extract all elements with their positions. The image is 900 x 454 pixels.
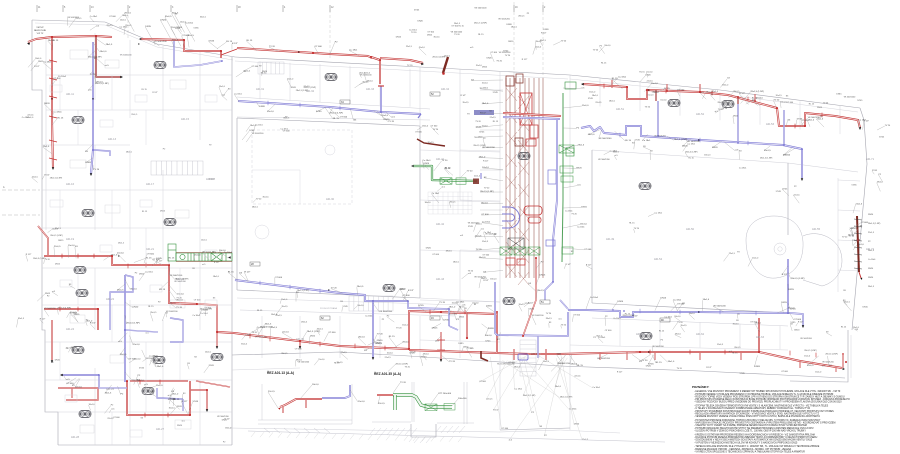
svg-text:DN20: DN20: [133, 307, 139, 309]
svg-text:VK 500/1200: VK 500/1200: [652, 346, 664, 348]
svg-text:RL 15: RL 15: [159, 289, 166, 291]
svg-text:57/45: 57/45: [790, 308, 796, 310]
svg-text:28x1,5: 28x1,5: [357, 286, 364, 288]
svg-text:18x1,0: 18x1,0: [250, 125, 257, 127]
svg-text:- NAPOJENI NA STAVAJICI ROZVOD: - NAPOJENI NA STAVAJICI ROZVODY PROVEST …: [694, 422, 835, 425]
svg-text:18x1,0: 18x1,0: [604, 45, 611, 47]
svg-text:57/45: 57/45: [857, 100, 863, 102]
svg-text:28x1,5 (1.NP): 28x1,5 (1.NP): [750, 91, 764, 93]
svg-text:TV 20: TV 20: [176, 307, 183, 309]
svg-text:A01.33: A01.33: [366, 88, 375, 91]
svg-text:OT 600: OT 600: [431, 125, 439, 127]
svg-text:DN20: DN20: [646, 366, 652, 368]
svg-text:57/45: 57/45: [782, 188, 788, 190]
svg-text:DN20: DN20: [44, 103, 50, 105]
svg-text:15x1,0: 15x1,0: [535, 46, 542, 48]
svg-text:- PROSTUPY STAVEBNIMI KONSTRUK: - PROSTUPY STAVEBNIMI KONSTRUKCEMI ZAJIS…: [694, 410, 834, 413]
svg-text:RL 15: RL 15: [577, 365, 584, 367]
svg-text:22x1,5: 22x1,5: [282, 332, 289, 334]
svg-text:Cu 18x1: Cu 18x1: [58, 76, 67, 78]
svg-text:28x1,5: 28x1,5: [454, 23, 461, 25]
svg-text:DN20: DN20: [310, 335, 316, 337]
svg-text:OT 600: OT 600: [490, 52, 498, 54]
svg-text:28x1,5 (1.NP): 28x1,5 (1.NP): [296, 90, 309, 92]
svg-text:R 1/2": R 1/2": [617, 372, 623, 374]
svg-text:VK 500/1200: VK 500/1200: [599, 138, 612, 140]
svg-text:OT 600: OT 600: [328, 332, 336, 334]
svg-text:57/45: 57/45: [879, 137, 885, 139]
svg-text:TV 20: TV 20: [269, 46, 276, 48]
svg-text:15x1,0: 15x1,0: [804, 356, 811, 358]
svg-text:RL 15: RL 15: [257, 310, 263, 312]
svg-text:28x1,5: 28x1,5: [734, 347, 741, 349]
svg-text:18x1,0: 18x1,0: [71, 347, 78, 349]
svg-text:15x1,0: 15x1,0: [402, 325, 409, 327]
svg-text:Cu 18x1: Cu 18x1: [577, 227, 585, 229]
svg-text:28x1,5 (1.NP): 28x1,5 (1.NP): [202, 252, 216, 254]
svg-text:OT 600: OT 600: [427, 32, 435, 34]
svg-text:OT 600: OT 600: [481, 214, 489, 216]
svg-text:Cu 18x1: Cu 18x1: [598, 337, 606, 339]
svg-text:R 1/2": R 1/2": [408, 290, 414, 292]
svg-text:22x1,5: 22x1,5: [244, 70, 251, 72]
svg-text:DN15: DN15: [661, 298, 667, 300]
svg-text:15x1,0: 15x1,0: [358, 401, 365, 403]
svg-text:35x1,5: 35x1,5: [265, 323, 272, 325]
svg-text:28x1,5 (1.NP): 28x1,5 (1.NP): [33, 258, 46, 260]
svg-text:TV 20: TV 20: [773, 100, 780, 102]
svg-text:57/45: 57/45: [872, 170, 878, 172]
svg-text:A01.11: A01.11: [66, 93, 74, 96]
svg-text:35x1,5: 35x1,5: [540, 40, 547, 42]
svg-text:DN15: DN15: [45, 293, 51, 295]
svg-text:28x1,5: 28x1,5: [518, 15, 525, 17]
svg-text:15x1,0: 15x1,0: [156, 385, 163, 387]
svg-text:ŘEZ A01.13 (A-A): ŘEZ A01.13 (A-A): [267, 370, 294, 375]
svg-text:Cu 18x1: Cu 18x1: [482, 222, 491, 224]
svg-text:A01.61: A01.61: [636, 333, 645, 336]
svg-text:18x1,0: 18x1,0: [357, 305, 364, 307]
svg-text:TV 20: TV 20: [718, 109, 724, 111]
svg-text:VK 500/1200: VK 500/1200: [559, 363, 571, 365]
svg-text:28x1,5: 28x1,5: [106, 44, 113, 46]
svg-text:RL 15: RL 15: [732, 352, 738, 354]
svg-text:TV 20: TV 20: [454, 34, 460, 36]
svg-text:18x1,0: 18x1,0: [580, 224, 587, 226]
svg-text:VIZ TZ: VIZ TZ: [37, 33, 44, 35]
svg-text:22x1,5: 22x1,5: [32, 177, 39, 179]
svg-text:RL 15: RL 15: [629, 222, 635, 224]
svg-text:DN15: DN15: [38, 61, 44, 63]
svg-text:57/45: 57/45: [485, 340, 491, 342]
svg-text:28x1,5 (1.NP): 28x1,5 (1.NP): [523, 395, 536, 397]
svg-text:VK 500/1200: VK 500/1200: [598, 159, 610, 161]
svg-text:28x1,5: 28x1,5: [337, 362, 344, 364]
svg-text:Cu 18x1: Cu 18x1: [200, 313, 208, 315]
svg-text:OT 600: OT 600: [109, 16, 117, 18]
svg-text:18x1,0: 18x1,0: [35, 58, 42, 60]
svg-text:57/45: 57/45: [588, 98, 594, 100]
svg-text:VK 500/1200: VK 500/1200: [800, 338, 812, 340]
svg-text:TV 20: TV 20: [677, 368, 683, 370]
svg-text:- VSECHNY ROZVODY BUDOU PRED U: - VSECHNY ROZVODY BUDOU PRED UVEDENIM DO…: [694, 401, 842, 404]
svg-text:28x1,5 (1.NP): 28x1,5 (1.NP): [95, 83, 109, 85]
svg-text:RL 15: RL 15: [170, 302, 176, 304]
svg-text:28x1,5 (1.NP): 28x1,5 (1.NP): [868, 223, 881, 225]
svg-text:DN20: DN20: [155, 360, 161, 362]
svg-text:15x1,0: 15x1,0: [476, 65, 483, 67]
svg-text:28x1,5: 28x1,5: [868, 250, 875, 252]
svg-text:DN20: DN20: [222, 420, 228, 422]
svg-text:28x1,5: 28x1,5: [96, 82, 103, 84]
svg-text:OT 600: OT 600: [402, 295, 410, 297]
svg-text:A01.52: A01.52: [696, 113, 705, 116]
svg-text:15x1,0: 15x1,0: [205, 351, 212, 353]
svg-text:A01.28: A01.28: [71, 436, 80, 439]
svg-text:A01.24: A01.24: [66, 328, 75, 331]
svg-text:VK 500/1200: VK 500/1200: [654, 135, 666, 137]
svg-text:15x1,0: 15x1,0: [582, 105, 589, 107]
svg-text:DN15: DN15: [139, 273, 145, 275]
svg-text:RL 15: RL 15: [478, 34, 484, 36]
svg-text:DN15: DN15: [482, 67, 488, 69]
svg-text:RL 15: RL 15: [146, 257, 153, 259]
svg-text:OT 600: OT 600: [573, 315, 581, 317]
svg-text:TV 20: TV 20: [377, 334, 384, 336]
svg-text:RL 15: RL 15: [849, 236, 855, 238]
svg-text:35x1,5: 35x1,5: [481, 203, 488, 205]
svg-text:Cu 18x1: Cu 18x1: [613, 318, 621, 320]
svg-text:A01.13: A01.13: [108, 138, 117, 141]
svg-text:DN15: DN15: [427, 34, 433, 36]
svg-text:28x1,5 (1.NP): 28x1,5 (1.NP): [396, 363, 409, 365]
svg-text:35x1,5: 35x1,5: [733, 323, 740, 325]
svg-text:Cu 18x1: Cu 18x1: [349, 49, 358, 51]
svg-text:Cu 18x1: Cu 18x1: [590, 297, 599, 299]
svg-text:22x1,5: 22x1,5: [595, 102, 602, 104]
svg-text:18x1,0: 18x1,0: [592, 95, 599, 97]
svg-text:Cu 18x1: Cu 18x1: [565, 210, 573, 212]
svg-text:22x1,5: 22x1,5: [486, 398, 493, 400]
svg-text:TV 20: TV 20: [396, 328, 402, 330]
svg-text:22x1,5: 22x1,5: [406, 46, 413, 48]
svg-text:Cu 18x1: Cu 18x1: [480, 88, 489, 90]
svg-text:TV 20: TV 20: [593, 50, 599, 52]
svg-text:28x1,5 (1.NP): 28x1,5 (1.NP): [480, 191, 494, 193]
svg-text:R 1/2": R 1/2": [633, 316, 639, 318]
svg-text:DN20: DN20: [177, 425, 183, 427]
svg-text:35x1,5: 35x1,5: [764, 150, 771, 152]
svg-text:28x1,5: 28x1,5: [358, 336, 365, 338]
svg-text:DN20: DN20: [529, 309, 535, 311]
svg-text:VK 500/1200: VK 500/1200: [44, 308, 56, 310]
svg-text:R 1/2": R 1/2": [44, 174, 50, 176]
svg-text:POCHOZI TRASA: POCHOZI TRASA: [320, 307, 338, 310]
svg-text:Cu 18x1: Cu 18x1: [484, 232, 492, 234]
svg-text:R 1/2": R 1/2": [739, 93, 745, 95]
svg-text:R 1/2": R 1/2": [483, 161, 489, 163]
svg-text:RL 15: RL 15: [58, 117, 65, 119]
svg-text:R 1/2": R 1/2": [157, 261, 163, 263]
svg-text:TV 20: TV 20: [149, 356, 155, 358]
svg-text:28x1,5 (1.NP): 28x1,5 (1.NP): [474, 22, 487, 24]
svg-text:15x1,0: 15x1,0: [387, 352, 394, 354]
svg-text:VK 500/1200: VK 500/1200: [154, 41, 167, 43]
svg-text:18x1,0: 18x1,0: [808, 120, 815, 122]
svg-text:57/45: 57/45: [740, 373, 746, 375]
svg-text:TV 20: TV 20: [407, 65, 413, 67]
svg-text:Cu 18x1: Cu 18x1: [592, 387, 600, 389]
svg-text:DN20: DN20: [868, 277, 874, 279]
svg-text:28x1,5: 28x1,5: [126, 152, 133, 154]
svg-text:28x1,5: 28x1,5: [446, 250, 453, 252]
svg-text:DN15: DN15: [55, 264, 61, 266]
svg-text:57/45: 57/45: [209, 41, 215, 43]
svg-text:22x1,5: 22x1,5: [385, 357, 392, 359]
svg-text:28x1,5 (1.NP): 28x1,5 (1.NP): [50, 178, 63, 180]
svg-text:57/45: 57/45: [852, 185, 858, 187]
svg-text:DN15: DN15: [55, 360, 61, 362]
svg-text:28x1,5 (1.NP): 28x1,5 (1.NP): [473, 145, 486, 147]
svg-text:OT 600: OT 600: [677, 90, 685, 92]
svg-text:DN20: DN20: [259, 106, 265, 108]
svg-text:TV 20: TV 20: [442, 160, 449, 162]
svg-text:RL 15: RL 15: [625, 314, 631, 316]
svg-text:15x1,0: 15x1,0: [646, 71, 653, 73]
svg-text:18x1,0: 18x1,0: [609, 101, 616, 103]
svg-text:18x1,0: 18x1,0: [482, 103, 489, 105]
svg-text:R 1/2": R 1/2": [798, 322, 804, 324]
svg-text:15x1,0: 15x1,0: [201, 240, 208, 242]
svg-text:28x1,5: 28x1,5: [252, 207, 259, 209]
svg-text:VZT 200x100: VZT 200x100: [438, 393, 452, 395]
svg-text:Cu 18x1: Cu 18x1: [54, 111, 63, 113]
svg-text:28x1,5: 28x1,5: [868, 286, 875, 288]
svg-text:28x1,5: 28x1,5: [117, 290, 124, 292]
svg-text:18x1,0: 18x1,0: [722, 85, 729, 87]
svg-text:OT 600: OT 600: [584, 249, 592, 251]
svg-text:22x1,5: 22x1,5: [807, 365, 814, 367]
svg-text:Cu 18x1: Cu 18x1: [515, 389, 523, 391]
svg-text:57/45: 57/45: [635, 139, 641, 141]
svg-text:DN20: DN20: [426, 248, 432, 250]
svg-text:35x1,5: 35x1,5: [241, 343, 248, 345]
svg-text:57/45: 57/45: [316, 111, 322, 113]
svg-text:28x1,5: 28x1,5: [481, 278, 488, 280]
svg-text:A01.16: A01.16: [66, 183, 75, 186]
svg-text:R 1/2": R 1/2": [182, 401, 188, 403]
svg-text:35x1,5: 35x1,5: [613, 152, 620, 154]
svg-text:28x1,5 (1.NP): 28x1,5 (1.NP): [88, 56, 102, 58]
svg-text:OT 600: OT 600: [677, 304, 685, 306]
svg-text:RL 15: RL 15: [142, 89, 148, 91]
svg-text:28x1,5: 28x1,5: [537, 290, 544, 292]
svg-text:TV 20: TV 20: [634, 228, 640, 230]
svg-text:DN20: DN20: [868, 214, 874, 216]
svg-text:VK 500/1200: VK 500/1200: [532, 315, 544, 317]
svg-text:DN20: DN20: [508, 41, 514, 43]
svg-text:VK 500/1200: VK 500/1200: [379, 311, 392, 313]
svg-text:28x1,5 (1.NP): 28x1,5 (1.NP): [804, 350, 817, 352]
svg-text:15x1,0: 15x1,0: [287, 78, 294, 80]
svg-text:57/45: 57/45: [156, 258, 162, 260]
svg-text:28x1,5 (1.NP): 28x1,5 (1.NP): [791, 278, 805, 280]
svg-text:OT 600: OT 600: [252, 66, 260, 68]
svg-text:Cu 18x1: Cu 18x1: [43, 62, 52, 64]
svg-text:18x1,0: 18x1,0: [482, 167, 489, 169]
svg-text:22x1,5: 22x1,5: [54, 246, 61, 248]
svg-text:Cu 18x1: Cu 18x1: [280, 129, 288, 131]
svg-text:DN15: DN15: [74, 314, 80, 316]
svg-text:28x1,5 (1.NP): 28x1,5 (1.NP): [685, 152, 698, 154]
svg-text:OT 600: OT 600: [502, 428, 510, 430]
svg-text:RL 15: RL 15: [625, 140, 632, 142]
svg-text:A01.22: A01.22: [106, 298, 115, 301]
svg-text:15x1,0: 15x1,0: [853, 327, 860, 329]
svg-text:Cu 18x1: Cu 18x1: [432, 193, 440, 195]
svg-text:VK 500/1200: VK 500/1200: [498, 18, 510, 20]
svg-text:DN20: DN20: [85, 162, 91, 164]
svg-text:DN15: DN15: [396, 36, 402, 38]
svg-text:28x1,5: 28x1,5: [301, 321, 308, 323]
svg-text:15x1,0: 15x1,0: [194, 254, 201, 256]
svg-text:15x1,0: 15x1,0: [482, 82, 489, 84]
svg-text:VK 500/1200: VK 500/1200: [822, 361, 834, 363]
svg-text:RL 15: RL 15: [53, 40, 60, 42]
svg-text:VK 500/1200: VK 500/1200: [499, 52, 511, 54]
svg-text:VK 500/1200: VK 500/1200: [166, 311, 178, 313]
svg-text:DN15: DN15: [458, 343, 464, 345]
svg-text:15x1,0: 15x1,0: [68, 245, 75, 247]
svg-text:R 1/2": R 1/2": [232, 43, 238, 45]
svg-text:R 1/2": R 1/2": [90, 323, 96, 325]
svg-text:DN15: DN15: [291, 87, 297, 89]
svg-text:DN20: DN20: [246, 334, 252, 336]
svg-text:A01.17: A01.17: [146, 183, 155, 186]
svg-text:Cu 18x1: Cu 18x1: [449, 314, 458, 316]
svg-text:18x1,0: 18x1,0: [122, 15, 129, 17]
svg-text:18x1,0: 18x1,0: [479, 157, 486, 159]
svg-text:28x1,5: 28x1,5: [107, 25, 114, 27]
svg-text:OT 600: OT 600: [283, 130, 291, 132]
svg-text:DN20: DN20: [646, 75, 652, 77]
svg-text:15x1,0: 15x1,0: [209, 179, 216, 181]
svg-text:TV 20: TV 20: [546, 313, 552, 315]
svg-text:TV 20: TV 20: [677, 322, 683, 324]
svg-text:A01.42: A01.42: [436, 223, 445, 226]
svg-text:A01.26: A01.26: [106, 388, 115, 391]
svg-text:VK 500/1200: VK 500/1200: [120, 54, 132, 56]
svg-text:57/45: 57/45: [249, 130, 255, 132]
svg-text:Cu 18x1: Cu 18x1: [688, 143, 696, 145]
svg-text:DN20: DN20: [868, 268, 874, 270]
svg-text:- PO MONTAZI PROVEDE DODAVATEL: - PO MONTAZI PROVEDE DODAVATEL TOPNOU ZK…: [694, 419, 821, 422]
svg-text:57/45: 57/45: [139, 368, 145, 370]
svg-text:22x1,5: 22x1,5: [304, 86, 311, 88]
svg-text:18x1,0: 18x1,0: [453, 261, 460, 263]
svg-text:DN20: DN20: [754, 366, 760, 368]
svg-text:28x1,5: 28x1,5: [755, 322, 762, 324]
svg-text:18x1,0: 18x1,0: [423, 354, 430, 356]
svg-text:DN15: DN15: [863, 306, 869, 308]
svg-text:TV 20: TV 20: [885, 125, 891, 127]
svg-text:Cu 18x1: Cu 18x1: [255, 124, 263, 126]
svg-text:22x1,5: 22x1,5: [268, 391, 275, 393]
svg-text:18x1,0: 18x1,0: [877, 182, 884, 184]
svg-text:- PRI PROSTUPU POZARNE DELICI: - PRI PROSTUPU POZARNE DELICI KONSTRUKCI…: [694, 398, 850, 401]
svg-text:TV 20: TV 20: [842, 237, 848, 239]
svg-text:OT 600: OT 600: [295, 348, 303, 350]
svg-text:DN20: DN20: [712, 147, 718, 149]
svg-text:TV 20: TV 20: [484, 187, 490, 189]
svg-text:OT 600: OT 600: [787, 102, 795, 104]
svg-text:18x1,0: 18x1,0: [674, 316, 681, 318]
svg-text:35x1,5: 35x1,5: [18, 318, 25, 320]
svg-text:TV 20: TV 20: [561, 324, 567, 326]
svg-text:A01.21: A01.21: [146, 248, 155, 251]
svg-text:Cu 18x1: Cu 18x1: [145, 271, 153, 273]
svg-text:18x1,0: 18x1,0: [571, 364, 578, 366]
svg-text:15x1,0: 15x1,0: [660, 100, 667, 102]
svg-text:18x1,0: 18x1,0: [157, 366, 164, 368]
svg-text:35x1,5: 35x1,5: [200, 17, 207, 19]
svg-text:A01.55: A01.55: [812, 228, 821, 231]
svg-text:15x1,0: 15x1,0: [27, 117, 34, 119]
svg-text:28x1,5: 28x1,5: [546, 318, 553, 320]
svg-text:RL 15: RL 15: [497, 364, 503, 366]
svg-text:18x1,0: 18x1,0: [172, 393, 179, 395]
svg-text:57/45: 57/45: [194, 27, 200, 29]
svg-text:15x1,0: 15x1,0: [120, 20, 127, 22]
svg-text:TV 20: TV 20: [388, 121, 395, 123]
svg-text:A01.27: A01.27: [156, 428, 165, 431]
svg-text:DN20: DN20: [618, 301, 624, 303]
svg-text:VK 500/1200: VK 500/1200: [217, 416, 229, 418]
svg-text:15x1,0: 15x1,0: [444, 56, 451, 58]
svg-text:- VSECHNY KOTY OVERIT NA STAVB: - VSECHNY KOTY OVERIT NA STAVBE, PRIPADN…: [694, 424, 807, 427]
svg-text:A01.50: A01.50: [686, 228, 695, 231]
svg-text:A01.53: A01.53: [766, 123, 775, 126]
svg-text:RL 15: RL 15: [601, 62, 607, 64]
svg-text:22x1,5: 22x1,5: [729, 253, 736, 255]
svg-text:DN20: DN20: [410, 353, 416, 355]
svg-text:35x1,5: 35x1,5: [476, 224, 483, 226]
svg-text:R 1/2": R 1/2": [40, 319, 46, 321]
svg-text:Cu 18x1: Cu 18x1: [569, 408, 577, 410]
svg-text:35x1,5: 35x1,5: [282, 306, 289, 308]
svg-text:22x1,5: 22x1,5: [490, 117, 497, 119]
svg-text:DN15: DN15: [836, 93, 842, 95]
svg-text:OT 600: OT 600: [605, 330, 613, 332]
svg-text:TV 20: TV 20: [645, 107, 651, 109]
svg-text:DN20: DN20: [544, 29, 550, 31]
svg-text:VK 500/1200: VK 500/1200: [260, 327, 273, 329]
svg-text:TV 20: TV 20: [642, 360, 649, 362]
svg-text:- U TELES V KOUPELNACH OSAZENY: - U TELES V KOUPELNACH OSAZENY KOMBINOVA…: [694, 407, 811, 410]
svg-text:35x1,5: 35x1,5: [681, 325, 688, 327]
svg-text:DN15: DN15: [463, 347, 469, 349]
svg-text:Cu 18x1: Cu 18x1: [642, 140, 651, 142]
svg-text:DN15: DN15: [788, 289, 794, 291]
svg-text:15x1,0: 15x1,0: [479, 257, 486, 259]
svg-text:18x1,0: 18x1,0: [449, 307, 456, 309]
svg-text:TV 20: TV 20: [90, 74, 97, 76]
svg-text:- POTRUBI OZNACENO SMALTOVANYM: - POTRUBI OZNACENO SMALTOVANYMI STITKY S…: [694, 427, 814, 430]
svg-text:DN20: DN20: [384, 119, 390, 121]
svg-text:RL 15: RL 15: [228, 271, 235, 273]
svg-text:DN15: DN15: [160, 211, 166, 213]
svg-text:22x1,5: 22x1,5: [647, 81, 654, 83]
